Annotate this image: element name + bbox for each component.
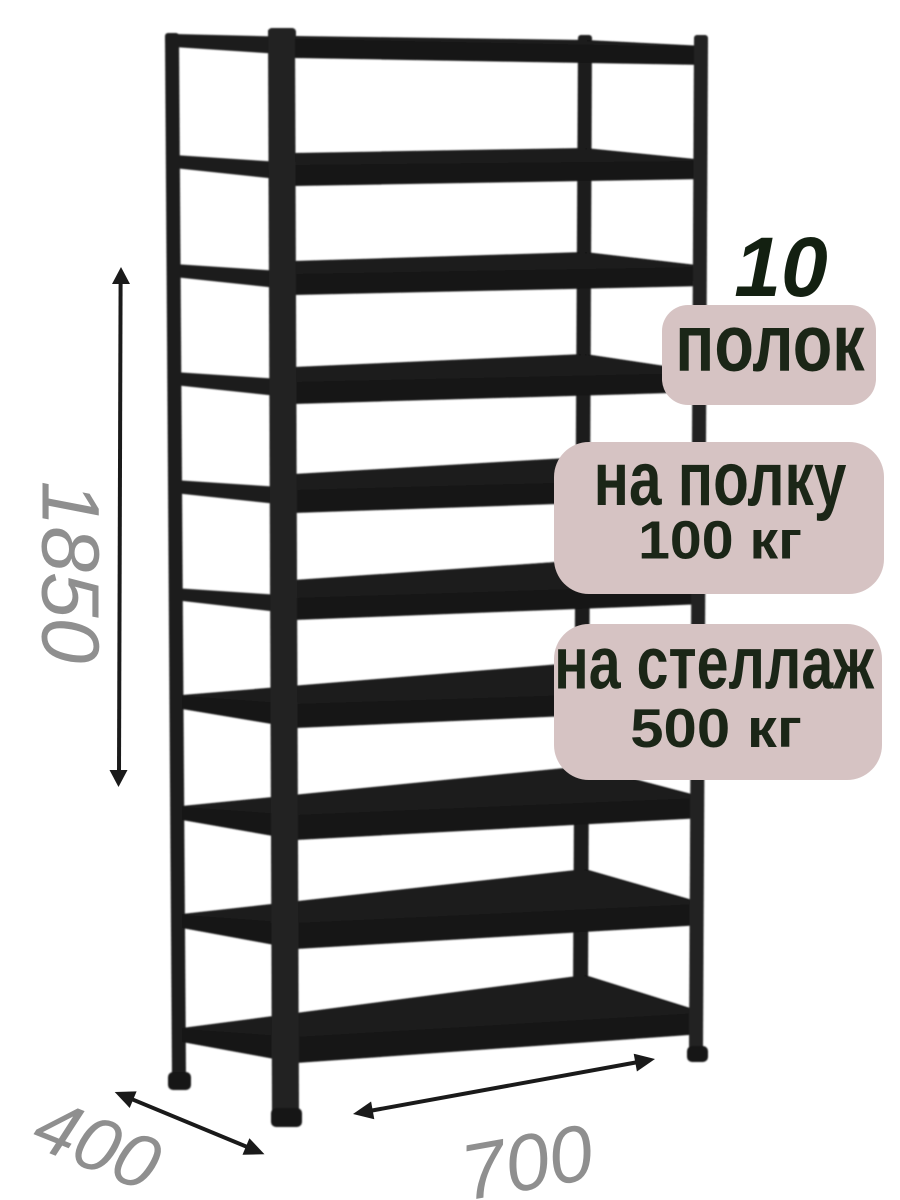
svg-text:100 кг: 100 кг (638, 510, 802, 570)
svg-text:1850: 1850 (25, 481, 116, 663)
svg-text:полок: полок (675, 298, 865, 389)
svg-text:500 кг: 500 кг (630, 698, 802, 759)
svg-text:на стеллаж: на стеллаж (554, 623, 875, 706)
